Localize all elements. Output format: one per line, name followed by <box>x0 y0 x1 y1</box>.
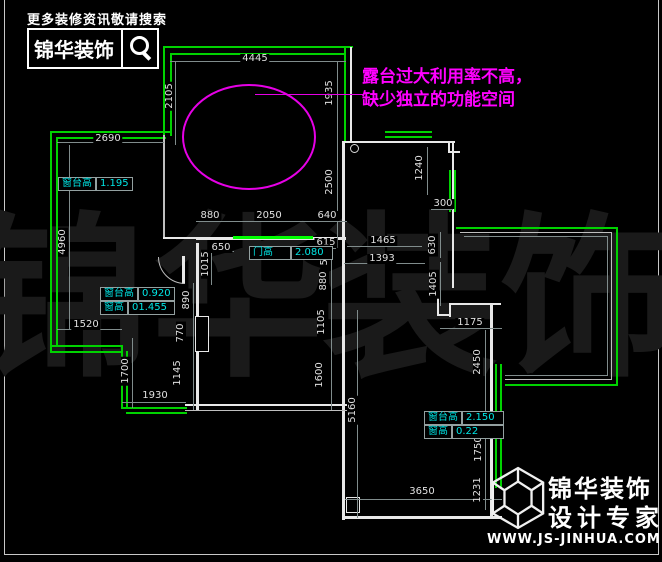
column-marker <box>350 144 359 153</box>
company-cube-logo-icon <box>489 465 547 535</box>
dim-label: 1393 <box>367 254 396 264</box>
dim-label: 2050 <box>254 211 283 221</box>
dim-line <box>132 338 133 408</box>
wall-line <box>449 303 501 305</box>
label-key: 窗高 <box>100 301 128 315</box>
balcony-line <box>456 227 618 229</box>
dim-line <box>440 232 441 258</box>
window-line <box>50 345 123 347</box>
footer-slogan: 设计专家 <box>548 498 662 533</box>
dim-label: 640 <box>315 211 338 221</box>
dim-line <box>175 61 176 145</box>
dim-line <box>440 262 441 306</box>
dim-label: 880 <box>319 269 329 292</box>
label-value: 0.920 <box>138 287 175 301</box>
dim-line <box>69 145 70 330</box>
door-height-label: 门高2.080 <box>249 246 333 260</box>
dim-label: 1930 <box>140 391 169 401</box>
dim-label: 300 <box>431 199 454 209</box>
wall-line <box>448 151 460 153</box>
sliding-door-line <box>233 236 313 239</box>
dim-line <box>331 245 332 410</box>
watermark-char: 饰 <box>500 212 662 388</box>
annotation-text: 露台过大利用率不高， 缺少独立的功能空间 <box>362 66 532 112</box>
dim-line <box>122 402 186 403</box>
footer-url: WWW.JS-JINHUA.COM <box>487 532 661 547</box>
balcony-line <box>611 232 612 380</box>
dim-label: 1520 <box>71 320 100 330</box>
balcony-line <box>607 236 608 376</box>
window-sill-label: 窗台高2.150 窗高0.22 <box>424 411 504 439</box>
dim-label: 770 <box>176 321 186 344</box>
window-line <box>385 131 432 133</box>
dim-label: 2450 <box>473 347 483 376</box>
label-key: 窗台高 <box>100 287 138 301</box>
dim-label: 1700 <box>121 356 131 385</box>
dim-label: 1405 <box>429 269 439 298</box>
wall-line <box>342 141 345 520</box>
label-key: 门高 <box>249 246 291 260</box>
dim-label: 1145 <box>173 358 183 387</box>
dim-line <box>193 283 194 410</box>
annotation-leader-line <box>255 94 363 95</box>
dim-line <box>427 147 428 195</box>
window-line <box>163 46 353 48</box>
window-line <box>385 136 432 138</box>
dim-line <box>347 246 422 247</box>
label-key: 窗高 <box>424 425 452 439</box>
brand-name: 锦华装饰 <box>29 34 121 63</box>
wall-line <box>185 404 347 406</box>
dim-label: 880 <box>198 211 221 221</box>
balcony-line <box>505 384 618 386</box>
window-line <box>50 351 123 353</box>
dim-label: 2500 <box>325 167 335 196</box>
balcony-line <box>464 236 608 237</box>
label-key: 窗台高 <box>58 177 96 191</box>
dim-label: 1935 <box>325 78 335 107</box>
balcony-line <box>505 375 608 376</box>
wall-line <box>345 516 502 519</box>
dim-label: 1465 <box>368 236 397 246</box>
annotation-line2: 缺少独立的功能空间 <box>362 89 532 112</box>
dim-label: 2105 <box>165 81 175 110</box>
search-tagline: 更多装修资讯敬请搜索 <box>27 9 167 28</box>
dim-label: 5160 <box>348 395 358 424</box>
annotation-line1: 露台过大利用率不高， <box>362 66 532 89</box>
dim-label: 1175 <box>455 318 484 328</box>
brand-search-box: 锦华装饰 <box>27 28 159 69</box>
dim-label: 4960 <box>58 227 68 256</box>
dim-label: 2690 <box>93 134 122 144</box>
balcony-line <box>505 379 612 380</box>
balcony-line <box>460 232 612 233</box>
label-value: 2.080 <box>291 246 333 260</box>
wall-line <box>350 47 352 143</box>
dim-label: 1231 <box>473 475 483 504</box>
dim-label: 890 <box>182 288 192 311</box>
dim-line <box>440 328 502 329</box>
window-sill-label: 窗台高1.195 <box>58 177 133 191</box>
wall-line <box>345 141 455 143</box>
balcony-line <box>616 227 618 386</box>
wall-line <box>452 143 454 233</box>
label-value: 0.22 <box>452 425 504 439</box>
floorplan-canvas: 锦 华 装 饰 <box>0 0 662 562</box>
search-icon <box>123 30 157 67</box>
dim-label: 1600 <box>315 360 325 389</box>
label-value: 1.195 <box>96 177 133 191</box>
terrace-highlight-ellipse <box>182 84 316 190</box>
dim-label: 630 <box>428 233 438 256</box>
wall-line <box>452 233 454 288</box>
window-line <box>121 407 187 409</box>
label-key: 窗台高 <box>424 411 462 425</box>
wall-pier <box>195 316 209 352</box>
window-line <box>50 131 52 352</box>
wall-line <box>163 135 165 237</box>
dim-label: 3650 <box>407 487 436 497</box>
dim-label: 1105 <box>317 307 327 336</box>
label-value: 01.455 <box>128 301 175 315</box>
window-line <box>126 412 187 414</box>
dim-label: 1240 <box>415 153 425 182</box>
label-value: 2.150 <box>462 411 504 425</box>
window-sill-label: 窗台高0.920 窗高01.455 <box>100 287 175 315</box>
wall-line <box>163 237 197 239</box>
wall-line <box>185 410 347 411</box>
dim-line <box>196 221 347 222</box>
wall-line <box>437 314 451 316</box>
search-icon-handle <box>141 50 152 61</box>
dim-label: 1015 <box>201 249 211 278</box>
dim-line <box>431 209 453 210</box>
dim-label: 650 <box>209 243 232 253</box>
dim-label: 4445 <box>240 54 269 64</box>
